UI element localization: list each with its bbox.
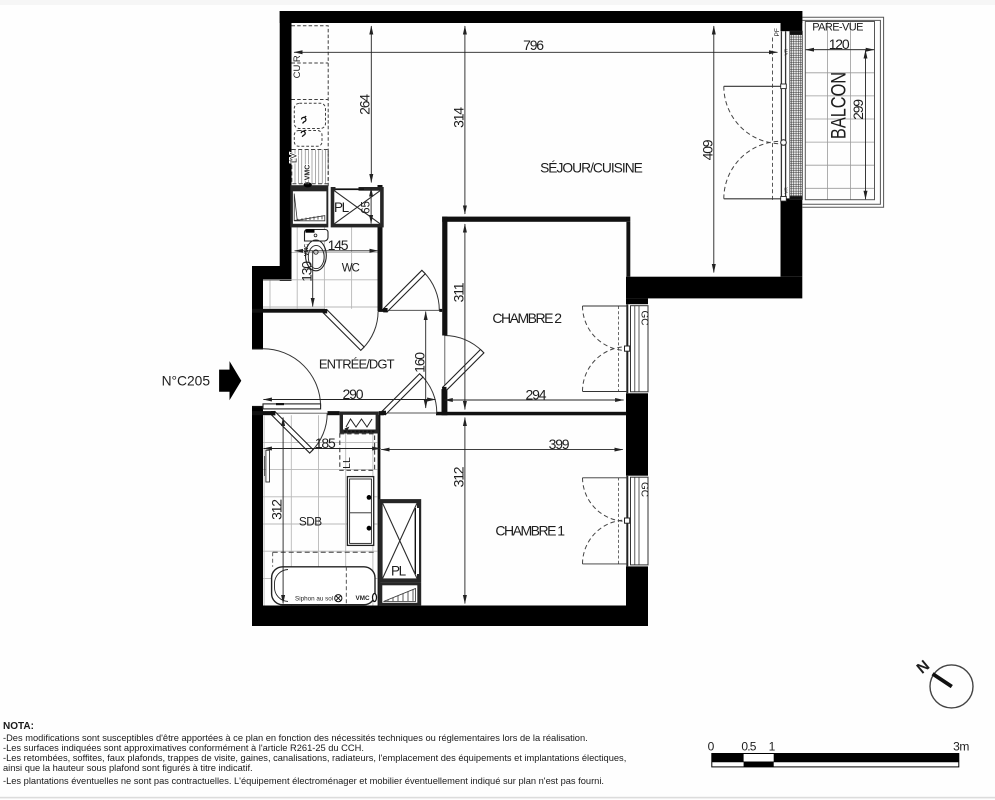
svg-text:LV: LV: [289, 153, 299, 163]
svg-text:Siphon au sol: Siphon au sol: [295, 596, 333, 603]
svg-text:N°C205: N°C205: [162, 373, 211, 388]
svg-text:PARE-VUE: PARE-VUE: [812, 21, 863, 33]
svg-text:GC: GC: [638, 311, 649, 326]
svg-text:294: 294: [526, 386, 547, 402]
svg-text:0: 0: [708, 740, 715, 754]
svg-text:409: 409: [699, 139, 715, 160]
svg-text:ENTRÉE/DGT: ENTRÉE/DGT: [319, 357, 395, 372]
svg-text:R: R: [292, 55, 303, 62]
svg-text:796: 796: [523, 37, 544, 53]
svg-text:130: 130: [298, 261, 314, 282]
svg-text:VR: VR: [784, 187, 790, 194]
svg-text:PF: PF: [774, 28, 781, 36]
svg-text:GC: GC: [638, 482, 649, 497]
svg-text:CU: CU: [292, 65, 303, 79]
svg-text:WC: WC: [342, 263, 360, 275]
svg-text:185: 185: [315, 435, 336, 451]
svg-text:314: 314: [451, 107, 467, 128]
svg-text:VMC: VMC: [305, 165, 312, 181]
svg-text:PL: PL: [334, 200, 350, 215]
svg-text:VMC: VMC: [356, 595, 370, 602]
svg-text:311: 311: [451, 282, 467, 302]
svg-text:PL: PL: [391, 564, 407, 579]
svg-text:LL: LL: [341, 457, 353, 469]
svg-text:BALCON: BALCON: [827, 72, 851, 139]
svg-text:CHAMBRE 2: CHAMBRE 2: [492, 310, 562, 326]
svg-text:VMC: VMC: [304, 244, 310, 256]
svg-text:SÉJOUR/CUISINE: SÉJOUR/CUISINE: [540, 160, 643, 176]
svg-text:145: 145: [328, 237, 349, 253]
svg-text:290: 290: [343, 386, 364, 402]
svg-text:1: 1: [769, 740, 776, 754]
svg-text:299: 299: [850, 99, 866, 120]
svg-text:3m: 3m: [953, 740, 969, 754]
svg-text:0.5: 0.5: [741, 740, 756, 754]
svg-text:264: 264: [357, 94, 373, 115]
svg-text:312: 312: [451, 466, 467, 487]
svg-text:160: 160: [411, 352, 427, 373]
svg-text:SDB: SDB: [299, 515, 322, 529]
svg-text:VR: VR: [784, 48, 790, 55]
svg-text:312: 312: [269, 499, 285, 520]
svg-text:CHAMBRE 1: CHAMBRE 1: [495, 523, 565, 539]
svg-text:399: 399: [549, 436, 570, 452]
svg-text:120: 120: [829, 36, 850, 52]
